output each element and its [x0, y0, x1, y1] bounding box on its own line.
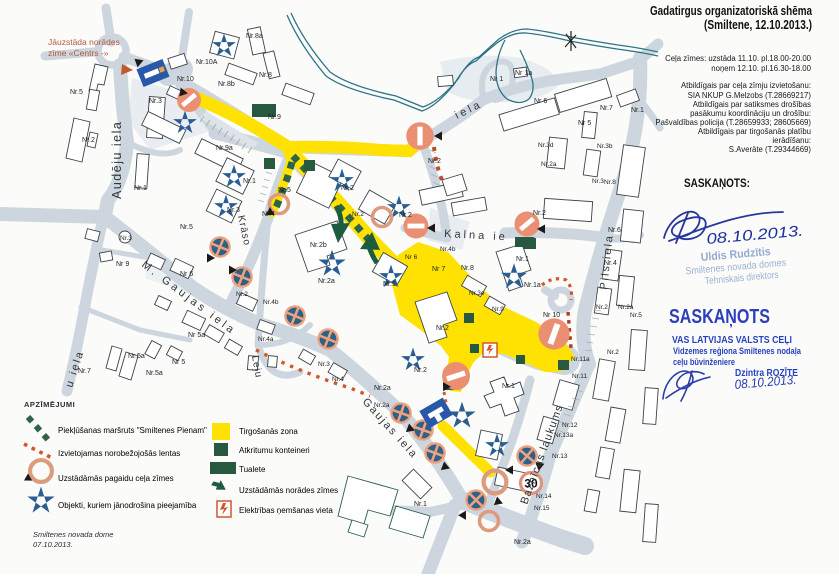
svg-text:pasākumu koordināciju un drošī: pasākumu koordināciju un drošību: [690, 109, 811, 118]
svg-text:Elektrības ņemšanas vieta: Elektrības ņemšanas vieta [239, 506, 333, 515]
svg-text:Nr.1: Nr.1 [502, 383, 515, 390]
svg-text:Pašvaldības policija (T.286599: Pašvaldības policija (T.28659933; 286056… [655, 118, 811, 127]
svg-text:Piekļūšanas maršruts "Smiltene: Piekļūšanas maršruts "Smiltenes Pienam" [58, 426, 207, 435]
svg-text:Nr.5: Nr.5 [278, 187, 291, 194]
svg-text:Nr 6: Nr 6 [180, 271, 193, 278]
svg-text:Nr.2a: Nr.2a [541, 161, 557, 168]
svg-text:Nr.15: Nr.15 [534, 505, 550, 512]
svg-text:Nr.2: Nr.2 [436, 325, 449, 332]
svg-text:Nr.3: Nr.3 [318, 361, 330, 368]
svg-text:Nr.14: Nr.14 [536, 493, 552, 500]
svg-text:Nr.3: Nr.3 [120, 235, 132, 242]
svg-text:Nr.1: Nr.1 [383, 281, 396, 288]
svg-text:Nr.13: Nr.13 [552, 453, 568, 460]
svg-text:VAS LATVIJAS VALSTS CEĻI: VAS LATVIJAS VALSTS CEĻI [672, 335, 792, 346]
svg-text:Nr.3e: Nr.3e [469, 290, 485, 297]
svg-text:Nr.8: Nr.8 [604, 179, 616, 186]
svg-text:Nr.2a: Nr.2a [374, 385, 391, 392]
svg-text:Nr.1: Nr.1 [134, 185, 147, 192]
svg-text:Nr.5: Nr.5 [70, 89, 83, 96]
svg-text:Izvietojamas norobežojošās le: Izvietojamas norobežojošās lentas [58, 449, 180, 458]
svg-text:Nr.2a: Nr.2a [618, 304, 634, 311]
svg-text:Nr.2: Nr.2 [607, 349, 619, 356]
svg-text:Objekti, kuriem jānodrošina pi: Objekti, kuriem jānodrošina pieejamība [58, 501, 197, 510]
svg-text:Nr.2: Nr.2 [82, 137, 95, 144]
svg-text:Nr.2a: Nr.2a [514, 539, 531, 546]
svg-text:Smiltenes novada dome: Smiltenes novada dome [33, 530, 113, 539]
svg-text:Nr.4: Nr.4 [604, 260, 617, 267]
svg-text:Uzstādāmās pagaidu ceļa zīmes: Uzstādāmās pagaidu ceļa zīmes [58, 474, 174, 483]
svg-text:SASKAŅOTS: SASKAŅOTS [669, 306, 770, 328]
svg-text:Nr.5: Nr.5 [180, 224, 193, 231]
svg-text:Atbildīgais par tirgošanās pla: Atbildīgais par tirgošanās platību [698, 127, 811, 136]
svg-text:Nr.1: Nr.1 [631, 107, 644, 114]
svg-text:Ceļa zīmes: uzstāda 11.10. pl.: Ceļa zīmes: uzstāda 11.10. pl.18.00-20.0… [665, 54, 812, 63]
svg-text:Nr 10: Nr 10 [543, 312, 560, 319]
svg-text:Nr 9: Nr 9 [116, 261, 129, 268]
svg-text:Nr.2: Nr.2 [399, 212, 412, 219]
svg-text:Nr.9: Nr.9 [268, 114, 281, 121]
svg-text:Nr.1a: Nr.1a [524, 282, 541, 289]
svg-text:ierādīšanu:: ierādīšanu: [772, 136, 811, 145]
svg-text:Nr.5a: Nr.5a [146, 370, 163, 377]
svg-text:APZĪMĒJUMI: APZĪMĒJUMI [24, 400, 75, 409]
svg-text:Nr.5: Nr.5 [630, 312, 642, 319]
svg-text:Nr 6: Nr 6 [405, 254, 418, 261]
svg-text:Nr.2: Nr.2 [428, 158, 441, 165]
svg-text:Nr.8b: Nr.8b [218, 81, 235, 88]
svg-text:Uzstādāmās norādes zīmes: Uzstādāmās norādes zīmes [239, 486, 338, 495]
svg-text:(Smiltene, 12.10.2013.): (Smiltene, 12.10.2013.) [704, 18, 812, 32]
svg-text:Nr.4: Nr.4 [332, 376, 344, 383]
svg-text:Nr.10: Nr.10 [177, 76, 194, 83]
svg-text:Nr.2a: Nr.2a [374, 402, 390, 409]
svg-text:Audēju iela: Audēju iela [110, 121, 124, 199]
svg-text:Nr.1: Nr.1 [516, 256, 529, 263]
svg-text:Atbildīgais par satiksmes droš: Atbildīgais par satiksmes drošības [693, 100, 811, 109]
svg-text:Nr.5a: Nr.5a [128, 353, 145, 360]
svg-text:S.Averāte (T.29344669): S.Averāte (T.29344669) [729, 145, 812, 154]
svg-text:Nr.8: Nr.8 [461, 265, 474, 272]
svg-text:Nr.2b: Nr.2b [310, 242, 327, 249]
svg-text:zīme «Centrs -»: zīme «Centrs -» [48, 48, 109, 58]
svg-text:Nr.2: Nr.2 [341, 185, 354, 192]
svg-text:noņem 12.10. pl.16.30-18.00: noņem 12.10. pl.16.30-18.00 [711, 64, 811, 73]
svg-text:Nr.11a: Nr.11a [571, 356, 590, 363]
svg-text:Vidzemes reģiona Smiltenes nod: Vidzemes reģiona Smiltenes nodaļa [673, 346, 802, 356]
svg-text:SIA NKUP G.Melzobs (T.28669217: SIA NKUP G.Melzobs (T.28669217) [688, 91, 812, 100]
svg-text:Nr.9: Nr.9 [492, 306, 504, 313]
svg-text:Nr.4: Nr.4 [262, 211, 275, 218]
svg-text:Tualete: Tualete [239, 465, 266, 474]
svg-text:Tirgošanās zona: Tirgošanās zona [239, 427, 298, 436]
svg-text:Nr.2: Nr.2 [596, 304, 608, 311]
svg-text:Nr.3: Nr.3 [227, 207, 240, 214]
svg-text:Nr.10A: Nr.10A [196, 59, 218, 66]
svg-text:Nr 5a: Nr 5a [188, 332, 205, 339]
svg-text:ceļu būvinženiere: ceļu būvinženiere [673, 357, 735, 367]
svg-text:Nr.7: Nr.7 [78, 368, 91, 375]
svg-text:Jāuzstāda norādes: Jāuzstāda norādes [48, 37, 120, 47]
svg-text:Nr.13a: Nr.13a [554, 432, 574, 439]
svg-text:Nr 5: Nr 5 [578, 120, 591, 127]
svg-text:Nr.8a: Nr.8a [246, 33, 263, 40]
svg-text:07.10.2013.: 07.10.2013. [33, 540, 73, 549]
svg-text:Nr.8: Nr.8 [259, 72, 272, 79]
svg-text:Nr.12: Nr.12 [562, 422, 578, 429]
svg-text:SASKAŅOTS:: SASKAŅOTS: [684, 178, 750, 190]
svg-text:Atkritumu konteineri: Atkritumu konteineri [239, 446, 310, 455]
svg-text:Nr.2: Nr.2 [236, 291, 248, 298]
svg-text:Nr.11: Nr.11 [572, 373, 587, 380]
svg-text:Nr.2: Nr.2 [352, 211, 364, 218]
svg-text:Nr.3b: Nr.3b [597, 143, 613, 150]
svg-text:Nr 5: Nr 5 [172, 359, 185, 366]
svg-text:Nr.2a: Nr.2a [318, 278, 335, 285]
svg-text:Nr 7: Nr 7 [432, 266, 445, 273]
svg-text:Nr.1: Nr.1 [243, 178, 256, 185]
svg-text:Nr.6: Nr.6 [608, 227, 621, 234]
svg-text:Nr.9a: Nr.9a [216, 145, 233, 152]
svg-text:Nr.4b: Nr.4b [263, 299, 279, 306]
svg-text:Atbildīgais par ceļa zīmju izv: Atbildīgais par ceļa zīmju izvietošanu: [681, 81, 811, 90]
svg-text:Nr 1: Nr 1 [490, 76, 503, 83]
svg-text:Nr.4a: Nr.4a [258, 336, 274, 343]
svg-text:Nr.2: Nr.2 [414, 367, 427, 374]
svg-text:Nr 6: Nr 6 [534, 98, 547, 105]
svg-text:Nr.7: Nr.7 [600, 105, 613, 112]
svg-text:Nr.4b: Nr.4b [440, 246, 456, 253]
svg-text:Nr.2: Nr.2 [533, 210, 546, 217]
svg-text:Nr 1a: Nr 1a [515, 70, 532, 77]
svg-text:Gadatirgus organizatoriskā shē: Gadatirgus organizatoriskā shēma [650, 4, 813, 18]
svg-text:Nr.3: Nr.3 [149, 98, 162, 105]
svg-text:Nr.3: Nr.3 [592, 178, 604, 185]
svg-text:Nr.1: Nr.1 [414, 501, 427, 508]
svg-text:Nr.3d: Nr.3d [538, 142, 554, 149]
